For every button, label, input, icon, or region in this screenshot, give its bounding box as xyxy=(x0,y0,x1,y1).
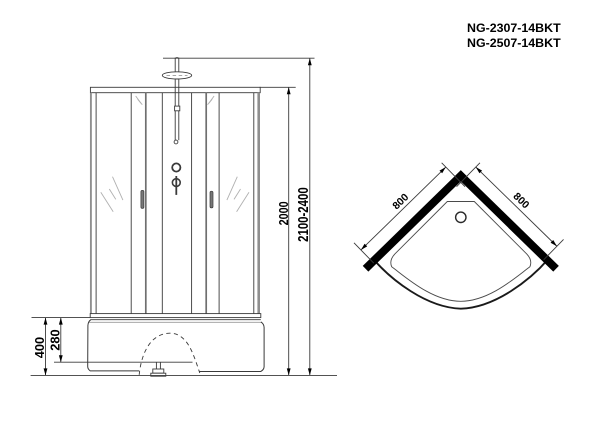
svg-text:2000: 2000 xyxy=(276,201,291,225)
svg-text:NG-2507-14BKT: NG-2507-14BKT xyxy=(467,36,561,50)
svg-text:400: 400 xyxy=(32,337,47,358)
svg-text:NG-2307-14BKT: NG-2307-14BKT xyxy=(467,21,561,35)
svg-text:280: 280 xyxy=(48,329,63,350)
svg-text:2100-2400: 2100-2400 xyxy=(296,187,312,242)
